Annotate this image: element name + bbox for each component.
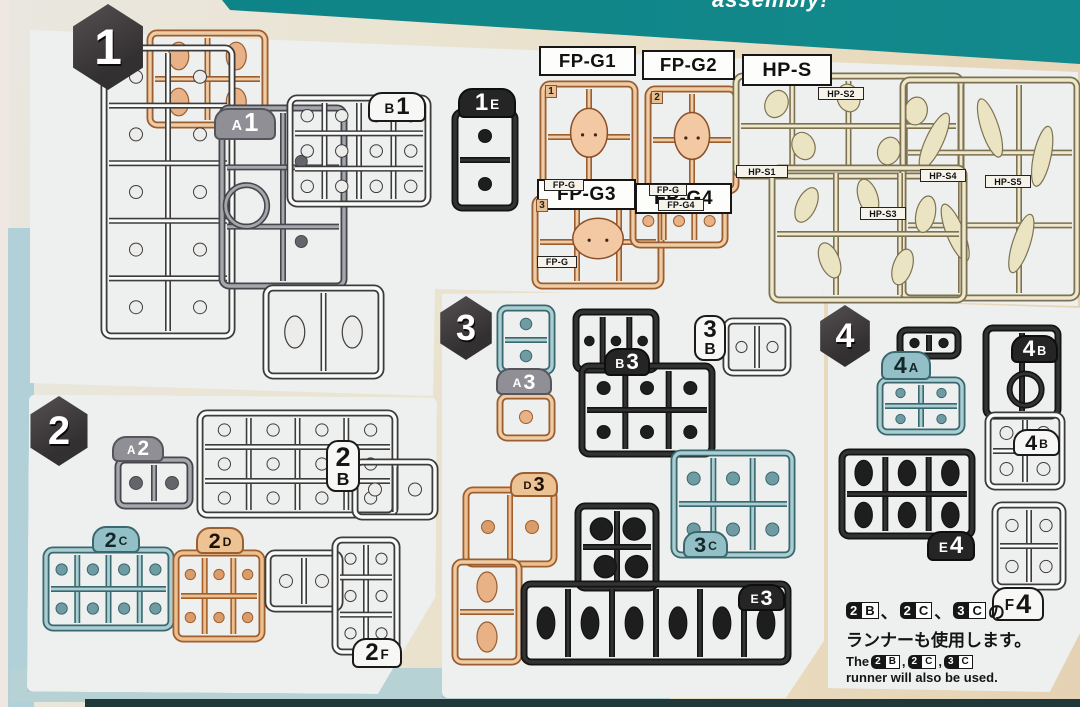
runner-tag-4b-blk: 4B [1011,335,1058,363]
tag-char: B [337,471,350,489]
tag-char: B [1039,438,1048,450]
runner-tag-2d: 2D [196,527,244,554]
tag-char: 2 [105,529,117,551]
part-label-fp-g1: FP-G1 [539,46,636,76]
tag-char: D [523,481,531,492]
runner-tag-3b: 3B [694,315,726,361]
note-line-1: 2B、2C、3Cの [846,598,1066,623]
runner-tag-b1: B1 [368,92,426,122]
header-partial-text: assembly! [712,0,829,13]
tag-char: B [384,102,394,116]
tag-char: 4 [1023,338,1035,360]
sub-label-hp-s5: HP-S5 [985,175,1031,188]
runner-tag-4b-wht: 4B [1013,429,1060,456]
sub-label-hp-s2: HP-S2 [818,87,864,100]
sub-label-hp-s3: HP-S3 [860,207,906,220]
tag-char: A [513,377,522,389]
tag-char: D [223,536,232,548]
runner-tag-4a: 4A [881,351,931,380]
tag-char: E [750,593,758,605]
tag-char: A [127,445,135,457]
runner-ref-badge-2C: 2C [900,602,933,619]
tag-char: C [119,535,128,547]
tag-char: 4 [894,354,907,377]
runner-ref-badge-3C: 3C [953,602,986,619]
tag-char: 1 [244,111,258,137]
tag-char: 2 [335,444,350,471]
runner-usage-note: 2B、2C、3Cのランナーも使用します。The 2B,2C,3Crunner w… [846,598,1066,698]
sub-label-fpg-t4: FP-G4 [658,199,704,211]
sub-label-fpg-t2: FP-G [649,184,687,196]
sub-label-hp-s1: HP-S1 [736,165,788,178]
part-label-fp-g2: FP-G2 [642,50,735,80]
tag-char: B [704,342,715,358]
runner-ref-badge-2B: 2B [871,655,900,669]
tag-char: 1 [396,95,409,119]
note-line-2: ランナーも使用します。 [846,626,1066,651]
tag-char: E [939,541,948,555]
sub-label-fpg-t3: FP-G [537,256,577,268]
runner-tag-b3: B3 [604,348,650,376]
tag-char: E [490,98,499,112]
tag-char: 3 [694,534,706,556]
corner-number-1: 1 [545,85,557,98]
runner-tag-2b: 2B [326,440,360,492]
runner-tag-a1: A1 [214,108,276,140]
tag-char: C [708,540,717,552]
tag-char: B [615,358,624,371]
runner-tag-a2: A2 [112,436,164,462]
runner-tag-3c: 3C [683,531,728,558]
tag-char: 3 [523,371,535,393]
runner-tag-2c: 2C [92,526,140,553]
runner-tag-a3: A3 [496,368,552,395]
tag-char: A [232,119,242,133]
note-line-4: runner will also be used. [846,670,1066,685]
tag-char: 3 [703,318,716,342]
tag-char: F [381,648,389,662]
tag-char: 1 [475,91,488,115]
tag-char: 2 [137,439,149,460]
sub-label-hp-s4: HP-S4 [920,169,966,182]
instruction-page: assembly! 1234A1B11EA22B2C2D2FA3B33BD33C… [0,0,1080,707]
part-label-hp-s: HP-S [742,54,832,86]
tag-char: 4 [950,534,963,558]
runner-ref-badge-2C: 2C [908,655,937,669]
corner-number-3: 3 [536,199,548,212]
runner-ref-badge-2B: 2B [846,602,879,619]
runner-tag-1e: 1E [458,88,516,118]
tag-char: 3 [626,351,638,373]
runner-tag-e4: E4 [927,531,975,561]
corner-number-2: 2 [651,91,663,104]
tag-char: 3 [534,475,545,495]
tag-char: 2 [209,530,221,552]
tag-char: 4 [1025,432,1037,454]
tag-char: 2 [365,641,378,665]
photo-bottom-edge [85,699,1080,707]
tag-char: B [1037,345,1046,358]
runner-ref-badge-3C: 3C [944,655,973,669]
sub-label-fpg-t1: FP-G [544,179,584,191]
runner-tag-e3: E3 [738,584,785,611]
runner-tag-2f: 2F [352,638,402,668]
tag-char: 3 [761,587,773,609]
tag-char: A [909,361,918,374]
runner-tag-d3: D3 [510,472,558,497]
note-line-3: The 2B,2C,3C [846,654,1066,669]
